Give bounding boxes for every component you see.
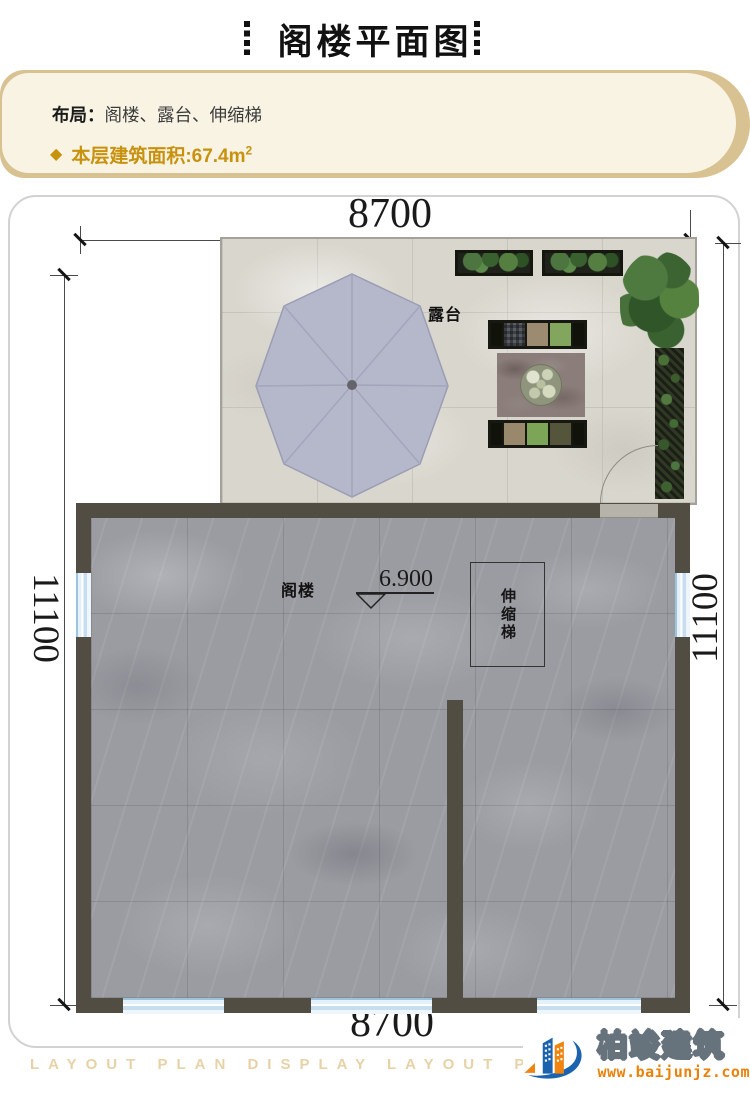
layout-label: 布局： [52,105,105,125]
dimension-left-value: 11100 [24,538,64,698]
ladder-box: 伸缩梯 [470,562,545,667]
outdoor-bench [488,420,587,448]
window-left [76,573,91,637]
window-right [675,573,690,637]
terrace-label: 露台 [428,301,462,325]
diamond-icon: ◆ [50,147,62,163]
logo-building-icon [523,1023,594,1089]
elevation-triangle-icon [356,593,386,610]
stone-tea-table [497,353,585,417]
area-value: 本层建筑面积:67.4m2 [71,141,252,168]
layout-row: 布局：阁楼、露台、伸缩梯 [52,102,262,127]
elevation-value: 6.900 [356,566,456,593]
window-bottom-2 [311,998,432,1014]
extension-line [715,243,741,245]
brand-logo[interactable]: 柏竣建筑 www.baijunjz.com [523,1018,750,1093]
layout-value: 阁楼、露台、伸缩梯 [105,105,263,125]
dimension-line-left [64,275,66,1005]
tree-canopy-icon [620,252,699,352]
dimension-line-right [723,243,725,1005]
brand-name: 柏竣建筑 [598,1032,750,1062]
title-dash-right-icon [474,21,480,55]
page: 阁楼平面图 布局：阁楼、露台、伸缩梯 ◆ 本层建筑面积:67.4m2 8700 … [0,0,750,1093]
planter-box [542,250,623,276]
window-bottom-3 [537,998,641,1014]
door-swing-arc [600,445,658,503]
planter-box [455,250,533,276]
terrace-area: 露台 [220,237,697,505]
patio-umbrella-icon [253,273,451,499]
attic-label: 阁楼 [281,577,315,601]
window-bottom-1 [123,998,224,1014]
page-title: 阁楼平面图 [0,14,750,65]
dimension-right-value: 11100 [687,538,727,698]
brand-website[interactable]: www.baijunjz.com [598,1065,750,1080]
dimension-top-value: 8700 [290,193,490,235]
area-row: ◆ 本层建筑面积:67.4m2 [50,141,252,168]
stone-plate-icon [520,364,562,406]
terrace-door [600,504,658,518]
outdoor-bench [488,320,587,349]
hedge-strip [655,348,684,499]
ladder-label: 伸缩梯 [497,588,518,642]
partition-wall [447,700,463,1013]
